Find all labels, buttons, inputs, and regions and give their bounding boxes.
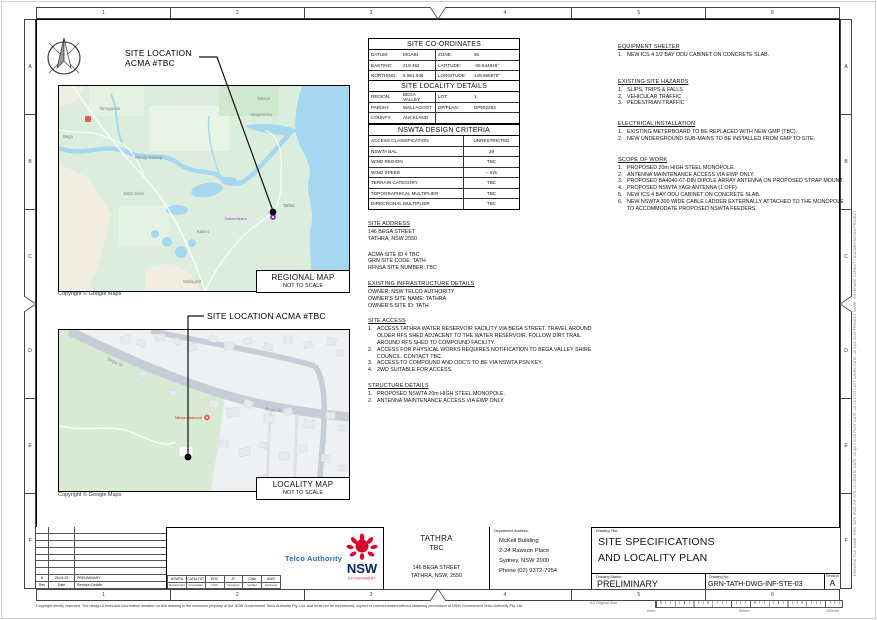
grid-col-label: 2 [171,7,305,19]
locality-map: Bega St Bega St Tathra reservoir [58,329,350,492]
grid-row-label: D [840,304,852,399]
scope-of-work-section: SCOPE OF WORK 1.PROPOSED 20m HIGH STEEL … [618,157,844,213]
scale-ruler [655,600,843,608]
site-notes-column: SITE ADDRESS 146 BEGA STREET TATHRA, NSW… [368,221,598,414]
drawing-title-line2: AND LOCALITY PLAN [598,552,840,564]
work-notes-column: EQUIPMENT SHELTER 1.NEW ICS 4 1/2 BAY OD… [618,44,844,221]
department-address-cell: Department Address: McKell Building 2-24… [490,527,592,589]
sheet-copyright: Copyright strictly reserved. The design … [36,604,596,608]
locality-map-graphic: Bega St Bega St Tathra reservoir [59,330,349,491]
table-title: SITE LOCALITY DETAILS [369,81,519,92]
table-row: DATUM:MGA94 ZONE:56 [369,50,519,61]
map-label: Jellat Jellat [123,191,145,196]
site-code: TBC [384,545,489,552]
plot-info-edge-note: DRAWING FILE NAME: GRN-TATH-DWG-INF-STE-… [853,36,857,576]
site-address-section: SITE ADDRESS 146 BEGA STREET TATHRA, NSW… [368,221,598,243]
site-address-line1: 146 BEGA STREET [384,565,489,571]
table-row: REGION:BEGA VALLEY LOT:1 [369,92,519,103]
grid-col-label: 2 [171,589,305,601]
compound-footprint [179,446,193,457]
grid-col-label: 4 [438,7,572,19]
grid-col-label: 1 [36,7,171,19]
site-coordinates-table: SITE CO-ORDINATES DATUM:MGA94 ZONE:56 EA… [368,38,520,82]
grid-row-label: D [24,304,36,399]
site-ids-section: ACMA SITE ID # TBC GRN SITE CODE: TATH R… [368,252,598,272]
table-row: PARISH:WALLAGOOT DP/PLAN:DP502253 [369,103,519,114]
map-label: Wallagoot [183,279,202,284]
grid-col-label: 3 [305,589,439,601]
drawing-status-cell: Drawing Status: PRELIMINARY [592,573,705,589]
table-row: COUNTY:AUCKLAND [369,113,519,123]
north-compass-icon [40,34,88,82]
table-title: SITE CO-ORDINATES [369,39,519,50]
grid-col-label: 6 [706,7,840,19]
grid-col-label: 5 [572,7,706,19]
reservoir-poi-label: Tathra reservoir [174,415,202,420]
drawing-status: PRELIMINARY [597,579,705,589]
regional-site-callout: SITE LOCATION ACMA #TBC [125,48,192,68]
map-label: Nelson [257,96,271,101]
grid-col-label: 1 [36,589,171,601]
google-copyright: Copyright © Google Maps [58,291,121,297]
map-label: Reedy Swamp [135,155,163,160]
revision-details: PRELIMINARY [75,575,166,582]
revision-rev: A [36,575,49,582]
map-label: Kalaru [197,229,210,234]
approvals-table: NSWTA CATALYST DRC JF CWe AWG Department… [167,575,281,589]
locality-site-callout: SITE LOCATION ACMA #TBC [207,311,326,321]
grid-row-label: A [24,19,36,115]
map-poi-icon [85,116,91,122]
nsw-logo-subtext: GOVERNMENT [348,577,376,581]
site-name: TATHRA [384,534,489,543]
drawing-title-line1: SITE SPECIFICATIONS [598,536,840,548]
map-label: Bega [63,134,73,139]
grid-strip-top: 1 2 3 4 5 6 [36,7,840,19]
site-access-section: SITE ACCESS 1.ACCESS TATHRA WATER RESERV… [368,318,598,374]
drawing-number-cell: Drawing No. GRN-TATH-DWG-INF-STE-03 [705,573,824,589]
map-poi-label: Tathra Beach [225,217,247,221]
regional-map: Tarraganda Nelson Mogareeka Bega Reedy S… [58,85,350,292]
grid-row-label: F [840,494,852,589]
grid-col-label: 3 [305,7,439,19]
drawing-revision: A [825,578,840,588]
grid-col-label: 4 [438,589,572,601]
map-label: Tathra [283,203,295,208]
grid-row-label: E [840,399,852,494]
grid-strip-left: A B C D E F [24,19,36,589]
regional-map-caption: REGIONAL MAP NOT TO SCALE [256,270,350,293]
nsw-government-logo: NSW GOVERNMENT [344,533,380,585]
grid-row-label: C [840,210,852,305]
structure-details-section: STRUCTURE DETAILS 1.PROPOSED NSWTA 20m H… [368,383,598,405]
existing-infrastructure-section: EXISTING INFRASTRUCTURE DETAILS OWNER: N… [368,281,598,309]
table-title: NSWTA DESIGN CRITERIA [369,125,519,136]
google-copyright: Copyright © Google Maps [58,492,121,498]
design-criteria-table: NSWTA DESIGN CRITERIA ACCESS CLASSIFICAT… [368,124,520,210]
telco-authority-wordmark: Telco Authority [285,554,342,563]
locality-map-caption: LOCALITY MAP NOT TO SCALE [256,477,350,500]
waratah-icon [346,534,378,560]
paper-size-label: A3 Original Size [590,601,617,605]
drawing-number: GRN-TATH-DWG-INF-STE-03 [708,579,824,588]
table-row: EASTING:219 452 LATITUDE:-36.544848° [369,61,519,72]
site-name-cell: TATHRA TBC 146 BEGA STREET TATHRA, NSW, … [383,527,490,589]
nsw-logo-text: NSW [347,561,378,576]
revision-table: A 28.04.25 PRELIMINARY Rev Date Revision… [36,527,167,589]
grid-row-label: C [24,210,36,305]
grid-row-label: F [24,494,36,589]
drawing-revision-cell: Revision A [824,573,840,589]
grid-row-label: E [24,399,36,494]
electrical-installation-section: ELECTRICAL INSTALLATION 1.EXISTING METER… [618,121,844,143]
drawing-sheet: 1 2 3 4 5 6 1 2 3 4 5 6 A B C D E F A B … [0,0,877,620]
site-locality-table: SITE LOCALITY DETAILS REGION:BEGA VALLEY… [368,80,520,124]
site-hazards-section: EXISTING SITE HAZARDS 1.SLIPS, TRIPS & F… [618,79,844,107]
regional-map-graphic: Tarraganda Nelson Mogareeka Bega Reedy S… [59,86,349,291]
map-label: Mogareeka [251,112,273,117]
revision-date: 28.04.25 [49,575,75,582]
map-label: Tarraganda [99,106,121,111]
site-address-line2: TATHRA, NSW, 2550 [384,573,489,579]
equipment-shelter-section: EQUIPMENT SHELTER 1.NEW ICS 4 1/2 BAY OD… [618,44,844,59]
grid-row-label: B [24,115,36,210]
